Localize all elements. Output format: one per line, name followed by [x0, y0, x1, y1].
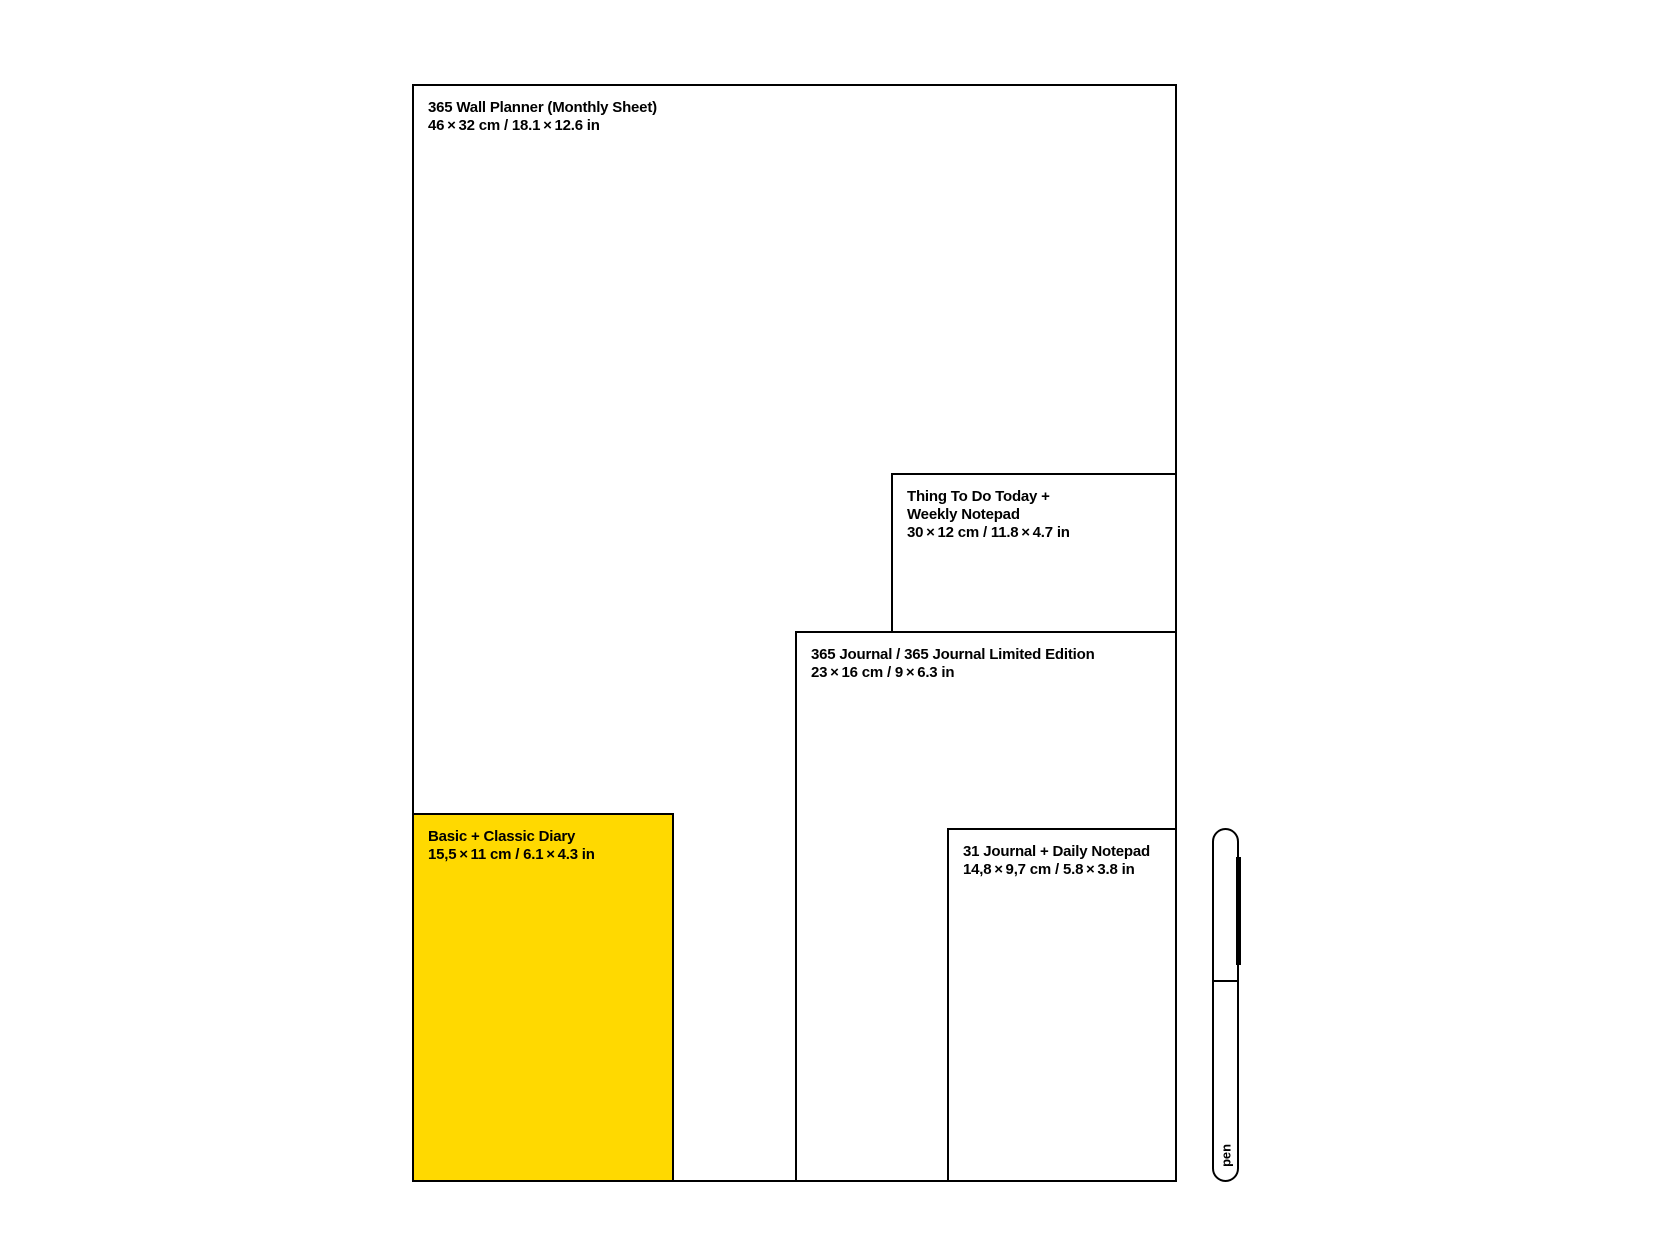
pen-cap-line: [1214, 980, 1237, 982]
pen-label: pen: [1218, 1144, 1233, 1167]
weekly-notepad-name-line2: Weekly Notepad: [907, 506, 1161, 524]
diary-name: Basic + Classic Diary: [428, 828, 658, 846]
diary-box: Basic + Classic Diary 15,5 × 11 cm / 6.1…: [412, 813, 674, 1182]
weekly-notepad-name-line1: Thing To Do Today +: [907, 488, 1161, 506]
journal-365-size: 23 × 16 cm / 9 × 6.3 in: [811, 664, 1161, 682]
diary-size: 15,5 × 11 cm / 6.1 × 4.3 in: [428, 846, 658, 864]
journal-31-box: 31 Journal + Daily Notepad 14,8 × 9,7 cm…: [947, 828, 1177, 1182]
pen: pen: [1212, 828, 1239, 1182]
wall-planner-label: 365 Wall Planner (Monthly Sheet) 46 × 32…: [414, 86, 1175, 148]
journal-31-name: 31 Journal + Daily Notepad: [963, 843, 1161, 861]
journal-365-label: 365 Journal / 365 Journal Limited Editio…: [797, 633, 1175, 695]
weekly-notepad-size: 30 × 12 cm / 11.8 × 4.7 in: [907, 524, 1161, 542]
journal-31-label: 31 Journal + Daily Notepad 14,8 × 9,7 cm…: [949, 830, 1175, 892]
journal-365-name: 365 Journal / 365 Journal Limited Editio…: [811, 646, 1161, 664]
weekly-notepad-box: Thing To Do Today + Weekly Notepad 30 × …: [891, 473, 1177, 631]
journal-31-size: 14,8 × 9,7 cm / 5.8 × 3.8 in: [963, 861, 1161, 879]
weekly-notepad-label: Thing To Do Today + Weekly Notepad 30 × …: [893, 475, 1175, 555]
pen-clip: [1236, 857, 1241, 965]
wall-planner-name: 365 Wall Planner (Monthly Sheet): [428, 99, 1161, 117]
wall-planner-size: 46 × 32 cm / 18.1 × 12.6 in: [428, 117, 1161, 135]
diary-label: Basic + Classic Diary 15,5 × 11 cm / 6.1…: [414, 815, 672, 877]
size-comparison-diagram: 365 Wall Planner (Monthly Sheet) 46 × 32…: [0, 0, 1654, 1240]
